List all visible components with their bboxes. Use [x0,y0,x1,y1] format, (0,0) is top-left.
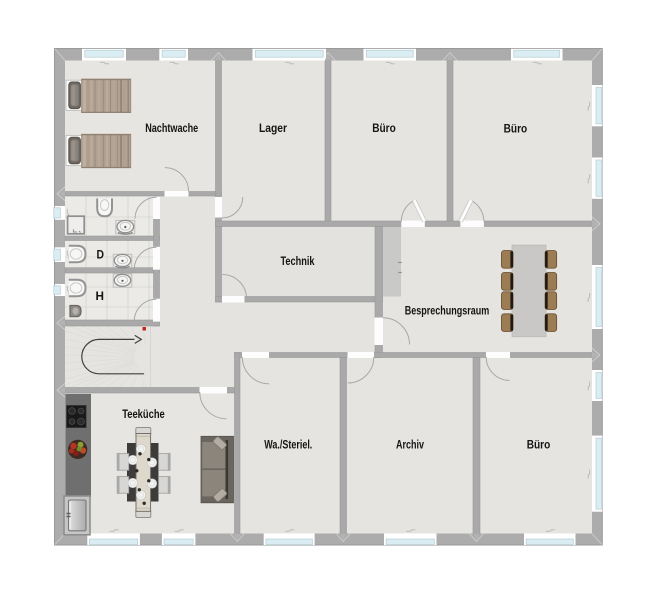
svg-text:Büro: Büro [504,122,528,136]
svg-text:Besprechungsraum: Besprechungsraum [405,303,490,317]
svg-text:D: D [97,248,105,262]
svg-text:Büro: Büro [527,438,551,452]
svg-text:Technik: Technik [281,254,315,268]
svg-text:Nachtwache: Nachtwache [145,121,198,135]
svg-text:Wa./Steriel.: Wa./Steriel. [264,438,312,452]
svg-text:Archiv: Archiv [396,438,424,452]
svg-text:Teeküche: Teeküche [122,407,165,421]
svg-text:Büro: Büro [372,121,396,135]
svg-text:H: H [95,289,104,303]
svg-text:Lager: Lager [259,121,287,135]
